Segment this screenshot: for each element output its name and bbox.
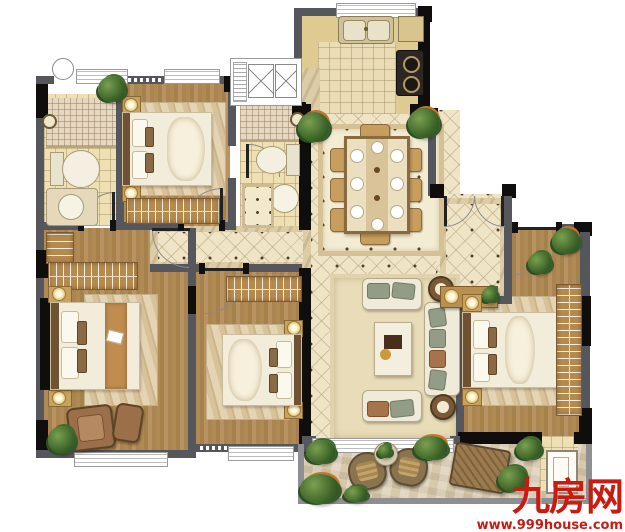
sofa-main [424, 302, 460, 396]
wardrobe [556, 284, 582, 416]
master-bedroom-window [74, 452, 168, 467]
accent-pillow [488, 354, 497, 375]
column [36, 84, 48, 118]
vanity-basin [58, 194, 84, 220]
wall-master-east [188, 228, 196, 454]
bed [222, 334, 302, 406]
sofa-cushion [391, 282, 416, 300]
wall-hatch [200, 446, 230, 450]
coffee-table [374, 322, 412, 376]
ac-grille [233, 62, 247, 102]
wall-segment [246, 264, 302, 272]
plant [552, 228, 580, 254]
nightstand-lamp [52, 391, 66, 405]
wall-segment [36, 76, 54, 84]
throw-blanket [167, 117, 205, 181]
bed-runner [105, 303, 127, 389]
accent-pillow [77, 349, 87, 373]
watermark-url: www.999house.com [477, 519, 623, 532]
centerpiece [374, 167, 380, 173]
plant [528, 252, 552, 274]
loveseat [362, 390, 422, 422]
accent-pillow [269, 374, 278, 393]
chair-cushion [355, 460, 379, 482]
throw-blanket [505, 316, 535, 384]
pillow [276, 372, 292, 399]
column [188, 286, 196, 314]
accent-pillow [77, 321, 87, 345]
place-setting [390, 205, 404, 219]
door-post [512, 222, 518, 233]
headboard-accent-wall [40, 298, 50, 390]
place-setting [390, 149, 404, 163]
plant [408, 108, 440, 138]
console-lamp [444, 289, 459, 304]
sofa-cushion [367, 283, 390, 299]
faucet [364, 27, 368, 31]
bathroom-center-door [246, 144, 249, 178]
accent-pillow [488, 327, 497, 348]
headboard [51, 303, 59, 389]
shrub [306, 440, 336, 464]
shrub [516, 438, 542, 460]
cooktop [396, 50, 424, 96]
toilet-tank [286, 144, 300, 176]
kitchen-cabinet [398, 16, 424, 42]
entry-door-right [501, 196, 504, 226]
place-setting [350, 177, 364, 191]
place-setting [390, 177, 404, 191]
nightstand-lamp [465, 296, 479, 310]
toilet-bowl [256, 146, 288, 174]
wardrobe-rail [569, 285, 570, 415]
chair-cushion [397, 456, 420, 478]
place-setting [350, 149, 364, 163]
wardrobe [126, 198, 220, 224]
plant [378, 444, 392, 458]
bedroom-top-left-window [164, 69, 220, 84]
wall-hatch [128, 78, 164, 82]
decor-bowl [380, 349, 391, 360]
accent-pillow [145, 127, 154, 147]
plant [298, 112, 330, 142]
master-bed [50, 302, 140, 390]
vent-circle [52, 58, 74, 80]
pedestal-basin [270, 184, 299, 213]
plant [48, 426, 76, 454]
throw-blanket [228, 339, 262, 401]
sink-basin [343, 20, 366, 41]
sink-basin [367, 20, 390, 41]
bedroom-right-door [516, 227, 558, 230]
shower-head [42, 114, 57, 129]
nightstand-lamp [465, 390, 479, 404]
door-post [243, 263, 249, 274]
wall-bed1-right-lower [228, 178, 236, 230]
plant [482, 287, 498, 303]
sofa-cushion [429, 329, 446, 348]
door-post [110, 220, 116, 231]
ac-unit-box [248, 64, 274, 98]
sofa-cushion [389, 399, 415, 418]
loveseat [362, 278, 422, 310]
door-post [199, 263, 205, 274]
floor-plan: 九房网 www.999house.com [0, 0, 625, 532]
watermark-brand: 九房网 [477, 478, 623, 516]
sofa-cushion [428, 307, 447, 328]
bed [462, 312, 560, 388]
wall-entry-east [504, 196, 512, 302]
kitchen-sink [338, 16, 394, 44]
ac-unit-box [275, 64, 297, 98]
burner [403, 76, 420, 93]
dining-table [344, 136, 410, 234]
centerpiece [374, 195, 380, 201]
headboard [123, 113, 130, 185]
ottoman [111, 402, 145, 444]
bedroom-bottom-center-window [228, 446, 294, 461]
shrub [300, 474, 340, 504]
place-setting [350, 205, 364, 219]
bedroom-bottom-center-door [204, 268, 246, 271]
master-door [152, 228, 190, 231]
shrub [414, 436, 448, 460]
watermark: 九房网 www.999house.com [477, 478, 623, 532]
bath-tile-mat [242, 184, 274, 228]
nightstand-lamp [52, 287, 66, 301]
accent-pillow [145, 153, 154, 173]
plant [98, 76, 126, 102]
entry-door-left [444, 196, 447, 226]
sofa-cushion [428, 369, 447, 391]
shrub [344, 486, 368, 502]
headboard [463, 313, 471, 387]
column [574, 432, 592, 444]
bed [122, 112, 212, 186]
coffee-table-tray [384, 335, 402, 349]
pillow [276, 341, 292, 368]
side-table [430, 394, 456, 420]
sofa-cushion [429, 350, 446, 368]
accent-pillow [269, 348, 278, 367]
place-setting [371, 218, 384, 231]
nightstand-lamp [124, 98, 138, 112]
armchair-cushion [77, 414, 106, 443]
sofa-cushion [367, 401, 389, 417]
nightstand-lamp [287, 321, 301, 335]
place-setting [371, 141, 384, 154]
column [430, 184, 444, 198]
wardrobe [226, 276, 302, 302]
toilet-bowl [62, 150, 100, 188]
burner [403, 56, 420, 73]
kitchen-floor [318, 42, 396, 114]
headboard [294, 335, 301, 405]
master-closet-upper [46, 232, 74, 264]
